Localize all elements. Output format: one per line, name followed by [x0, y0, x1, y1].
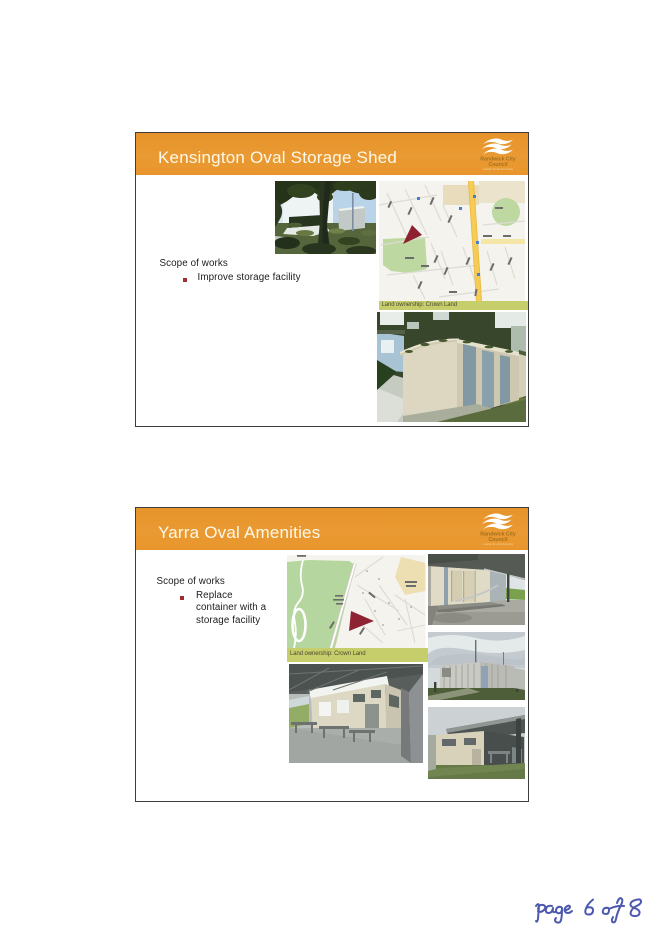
svg-text:Council: Council	[488, 537, 508, 543]
svg-text:a better for all community: a better for all community	[483, 167, 514, 171]
svg-text:Council: Council	[488, 162, 508, 168]
svg-text:a better for all community: a better for all community	[483, 542, 514, 546]
